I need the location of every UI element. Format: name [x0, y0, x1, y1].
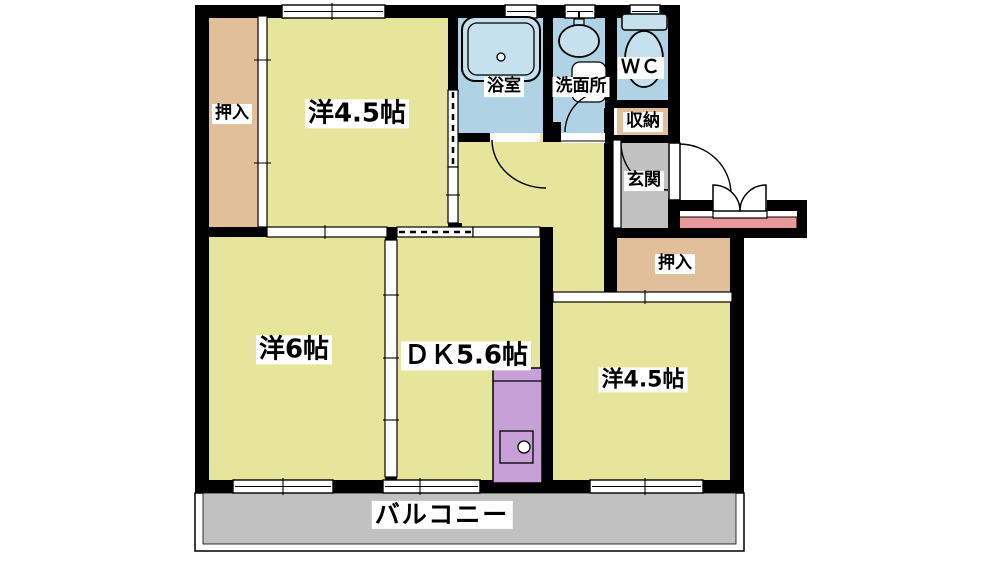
- room-right-sliding-doors: [553, 292, 732, 302]
- bathtub-drain: [497, 53, 505, 61]
- dk-sliding-door: [473, 227, 540, 237]
- front-door-petal-left: [713, 185, 740, 211]
- label-entrance: 玄関: [624, 171, 664, 191]
- label-closet-right: 押入: [655, 254, 695, 274]
- kitchen-counter: [493, 368, 542, 483]
- front-door-leaf: [669, 143, 680, 200]
- kitchen-counter-fixture: [493, 368, 542, 483]
- label-wc: ＷＣ: [618, 57, 664, 79]
- hall-strip-floor: [553, 228, 605, 292]
- entrance-porch: [678, 209, 797, 230]
- label-washroom: 洗面所: [553, 77, 610, 97]
- washbasin-bowl: [559, 25, 599, 57]
- label-room-left: 洋6帖: [256, 335, 332, 364]
- sliding-room-top-to-left: [267, 227, 387, 237]
- bath-doorway: [490, 133, 540, 142]
- kitchen-sink-drain: [518, 441, 530, 453]
- hall-floor: [458, 133, 605, 228]
- label-bath: 浴室: [484, 77, 524, 97]
- closet-top-left-fusuma: [258, 16, 267, 227]
- bathtub-outer: [462, 17, 540, 81]
- floorplan-canvas: 洋4.5帖 押入 浴室 洗面所 ＷＣ 収納 玄関 押入 洋6帖 ＤＫ5.6帖 洋…: [0, 0, 1000, 562]
- bathtub-fixture: [462, 17, 540, 81]
- label-room-top: 洋4.5帖: [305, 99, 409, 128]
- toilet-tank: [622, 14, 667, 30]
- label-room-right: 洋4.5帖: [599, 367, 688, 392]
- label-dining-kitchen: ＤＫ5.6帖: [401, 341, 531, 370]
- label-storage: 収納: [623, 112, 663, 132]
- entrance-hall-door-channel: [613, 140, 621, 228]
- front-door-petal-right: [740, 185, 766, 211]
- label-closet-top-left: 押入: [212, 104, 252, 124]
- floor-areas: [209, 16, 732, 483]
- label-balcony: バルコニー: [372, 501, 513, 529]
